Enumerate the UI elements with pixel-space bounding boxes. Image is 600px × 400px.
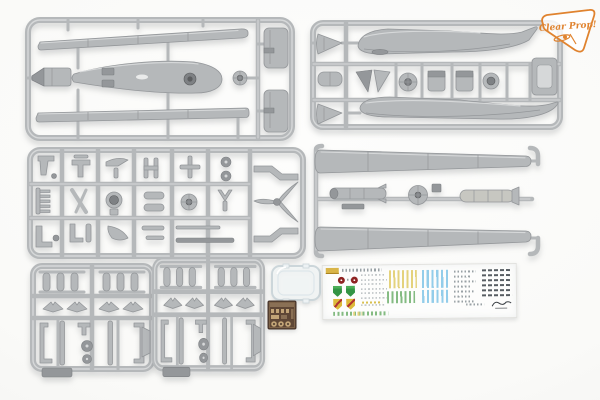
kit-photo: Clear Prop!: [0, 0, 600, 400]
tiny-marks: [346, 279, 350, 281]
stripe-block-yellow: [389, 270, 417, 288]
wing-half-part-top: [315, 150, 531, 173]
wheel-parts: [221, 157, 231, 181]
spinner-cone-parts: [317, 34, 343, 124]
small-code-row: [466, 303, 484, 305]
munitions-sprue-1: [30, 263, 156, 383]
shield-emblem-decal: [346, 286, 355, 297]
fuselage-half-part-top: [358, 27, 537, 55]
sprue-c-detail-parts: [26, 146, 308, 262]
sheet-title-text: [342, 268, 382, 271]
long-blade-part-top: [38, 29, 248, 50]
long-blade-part-bottom: [36, 108, 249, 122]
photo-etch-fret: [267, 300, 297, 330]
nacelle-block-parts: [264, 28, 288, 132]
nose-cone-part: [32, 68, 71, 86]
sprue-d-wings-and-stores: [308, 142, 544, 260]
munition-part: [460, 187, 519, 205]
fuselage-pod-part: [72, 61, 222, 93]
wing-half-part-bottom: [315, 227, 531, 251]
stencil-decals: [361, 274, 387, 305]
missile-part: [330, 184, 386, 209]
sheet-label-decal: [326, 268, 339, 274]
roundel-decal: [351, 277, 358, 284]
sprue-b-boom-halves: [310, 12, 564, 132]
sprue-a-fuselage-and-blades: [18, 12, 306, 148]
propeller-part: [254, 166, 298, 242]
stripe-block-blue: [422, 270, 449, 288]
stripe-block-green: [387, 291, 415, 303]
munitions-sprue-2: [152, 257, 266, 383]
clear-parts-piece: [269, 263, 323, 304]
hub-wheel-part: [409, 184, 442, 205]
shield-emblem-decal: [333, 286, 342, 297]
stripe-block-blue: [422, 290, 448, 303]
brand-logo: Clear Prop!: [537, 8, 599, 56]
crest-emblem-decal: [333, 299, 342, 310]
signature-mark: [491, 299, 513, 309]
roundel-decal: [338, 277, 345, 284]
yellow-dash-strip-decal: [353, 312, 362, 316]
decal-sheet: #decal [data-name="stencil-decals"] > di…: [322, 263, 518, 320]
crest-emblem-decal: [346, 299, 355, 310]
small-wheel-part: [233, 71, 247, 85]
